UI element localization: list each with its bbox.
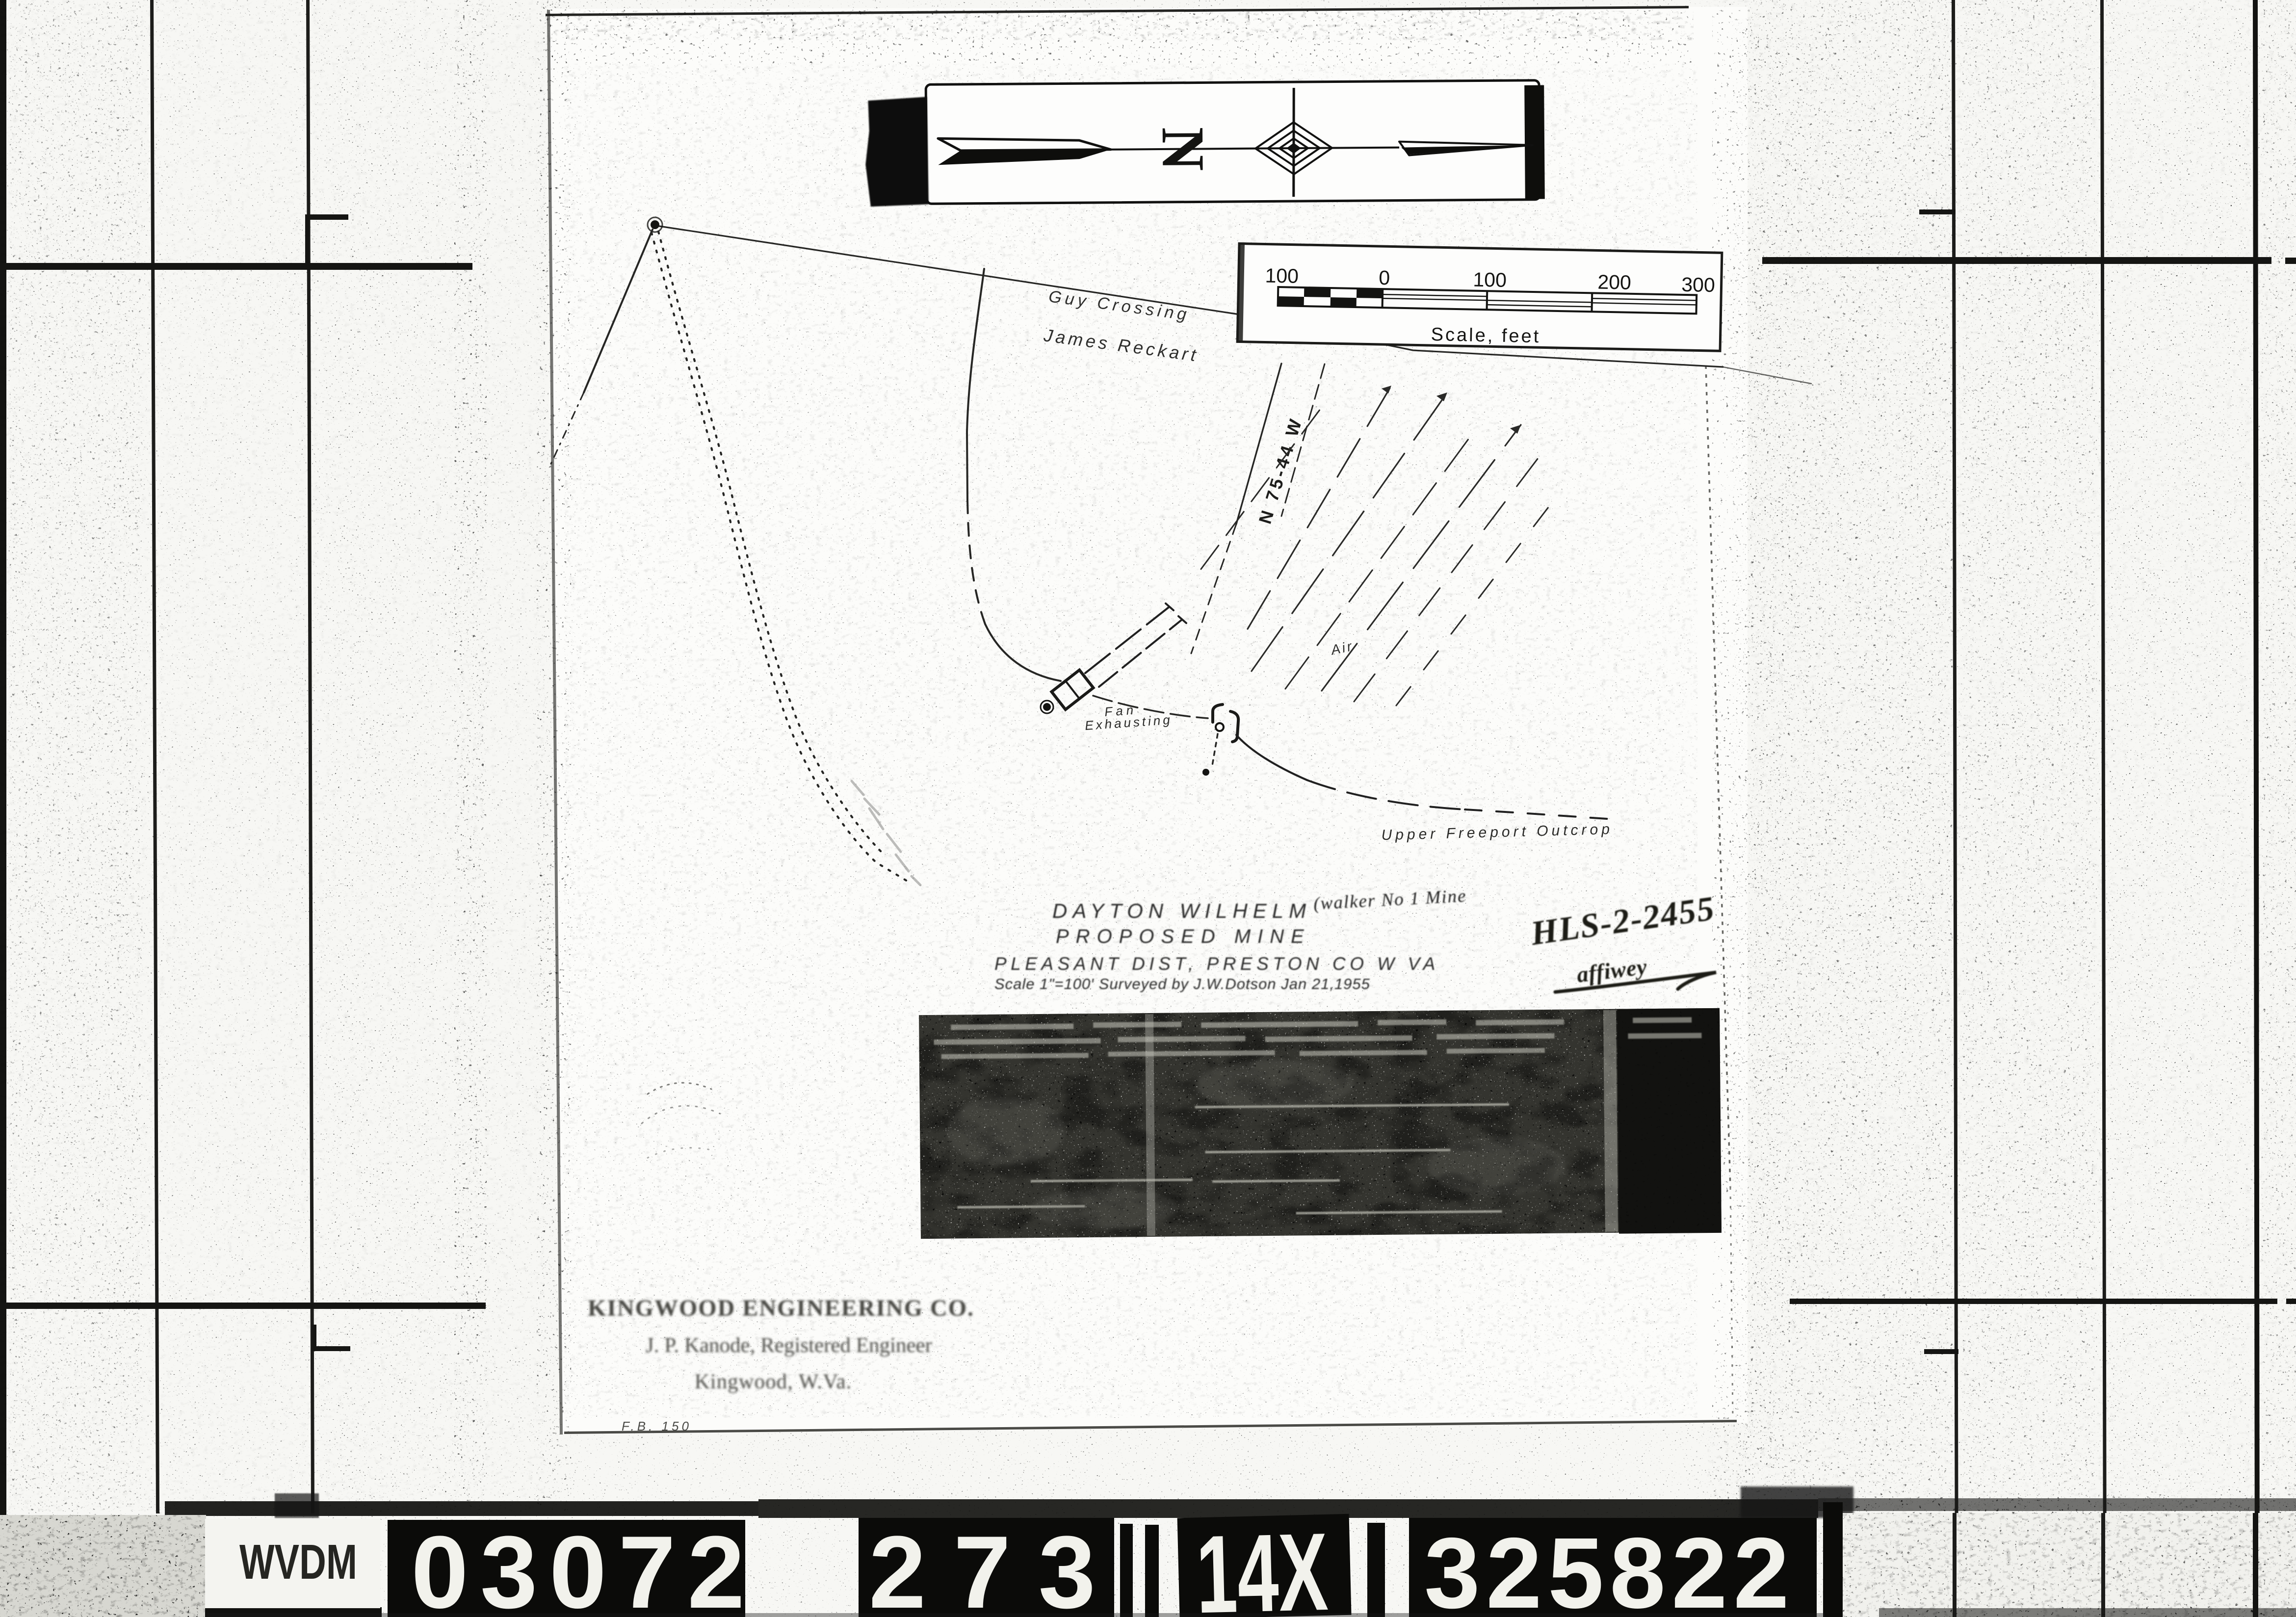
svg-text:325822: 325822 bbox=[1424, 1517, 1795, 1617]
svg-text:N: N bbox=[1149, 127, 1217, 171]
svg-text:DAYTON WILHELM: DAYTON WILHELM bbox=[1052, 899, 1311, 922]
svg-text:300: 300 bbox=[1681, 273, 1715, 296]
svg-text:14X: 14X bbox=[1195, 1510, 1329, 1617]
svg-text:WVDM: WVDM bbox=[239, 1535, 357, 1590]
svg-text:200: 200 bbox=[1597, 271, 1631, 294]
svg-text:PROPOSED MINE: PROPOSED MINE bbox=[1056, 926, 1311, 947]
svg-text:03072: 03072 bbox=[411, 1514, 757, 1617]
svg-text:PLEASANT DIST, PRESTON CO: PLEASANT DIST, PRESTON CO W VA bbox=[994, 954, 1439, 974]
svg-text:100: 100 bbox=[1265, 264, 1299, 287]
svg-text:0: 0 bbox=[1379, 266, 1390, 289]
svg-text:J. P. Kanode, Registered Engin: J. P. Kanode, Registered Engineer bbox=[646, 1334, 932, 1357]
svg-text:Kingwood, W.Va.: Kingwood, W.Va. bbox=[695, 1370, 852, 1393]
svg-text:273: 273 bbox=[869, 1514, 1123, 1617]
svg-text:100: 100 bbox=[1473, 268, 1507, 291]
svg-text:Scale 1"=100′ Surveyed by J: Scale 1"=100′ Surveyed by J.W.Dotson Jan… bbox=[994, 975, 1370, 992]
svg-text:F.B. 150: F.B. 150 bbox=[622, 1419, 692, 1434]
svg-text:KINGWOOD ENGINEERING CO.: KINGWOOD ENGINEERING CO. bbox=[588, 1295, 974, 1321]
svg-text:Scale, feet: Scale, feet bbox=[1431, 324, 1540, 347]
